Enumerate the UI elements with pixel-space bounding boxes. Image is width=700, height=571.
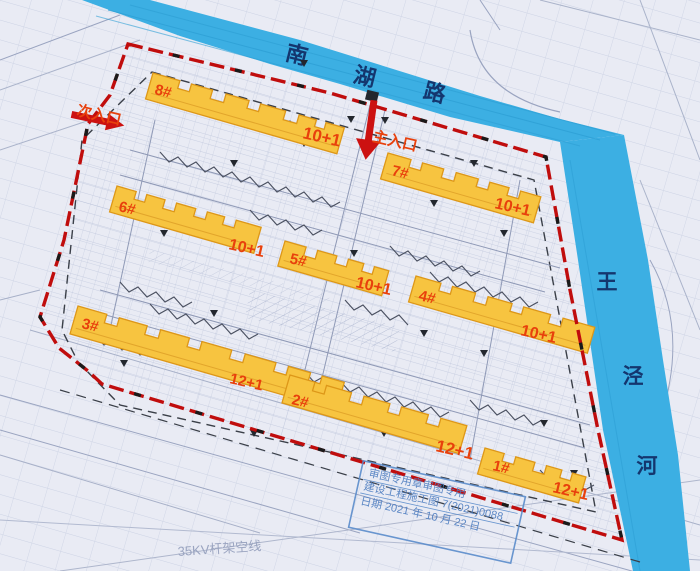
svg-text:河: 河	[637, 455, 658, 478]
svg-text:泾: 泾	[623, 365, 644, 388]
svg-text:王: 王	[597, 271, 618, 294]
